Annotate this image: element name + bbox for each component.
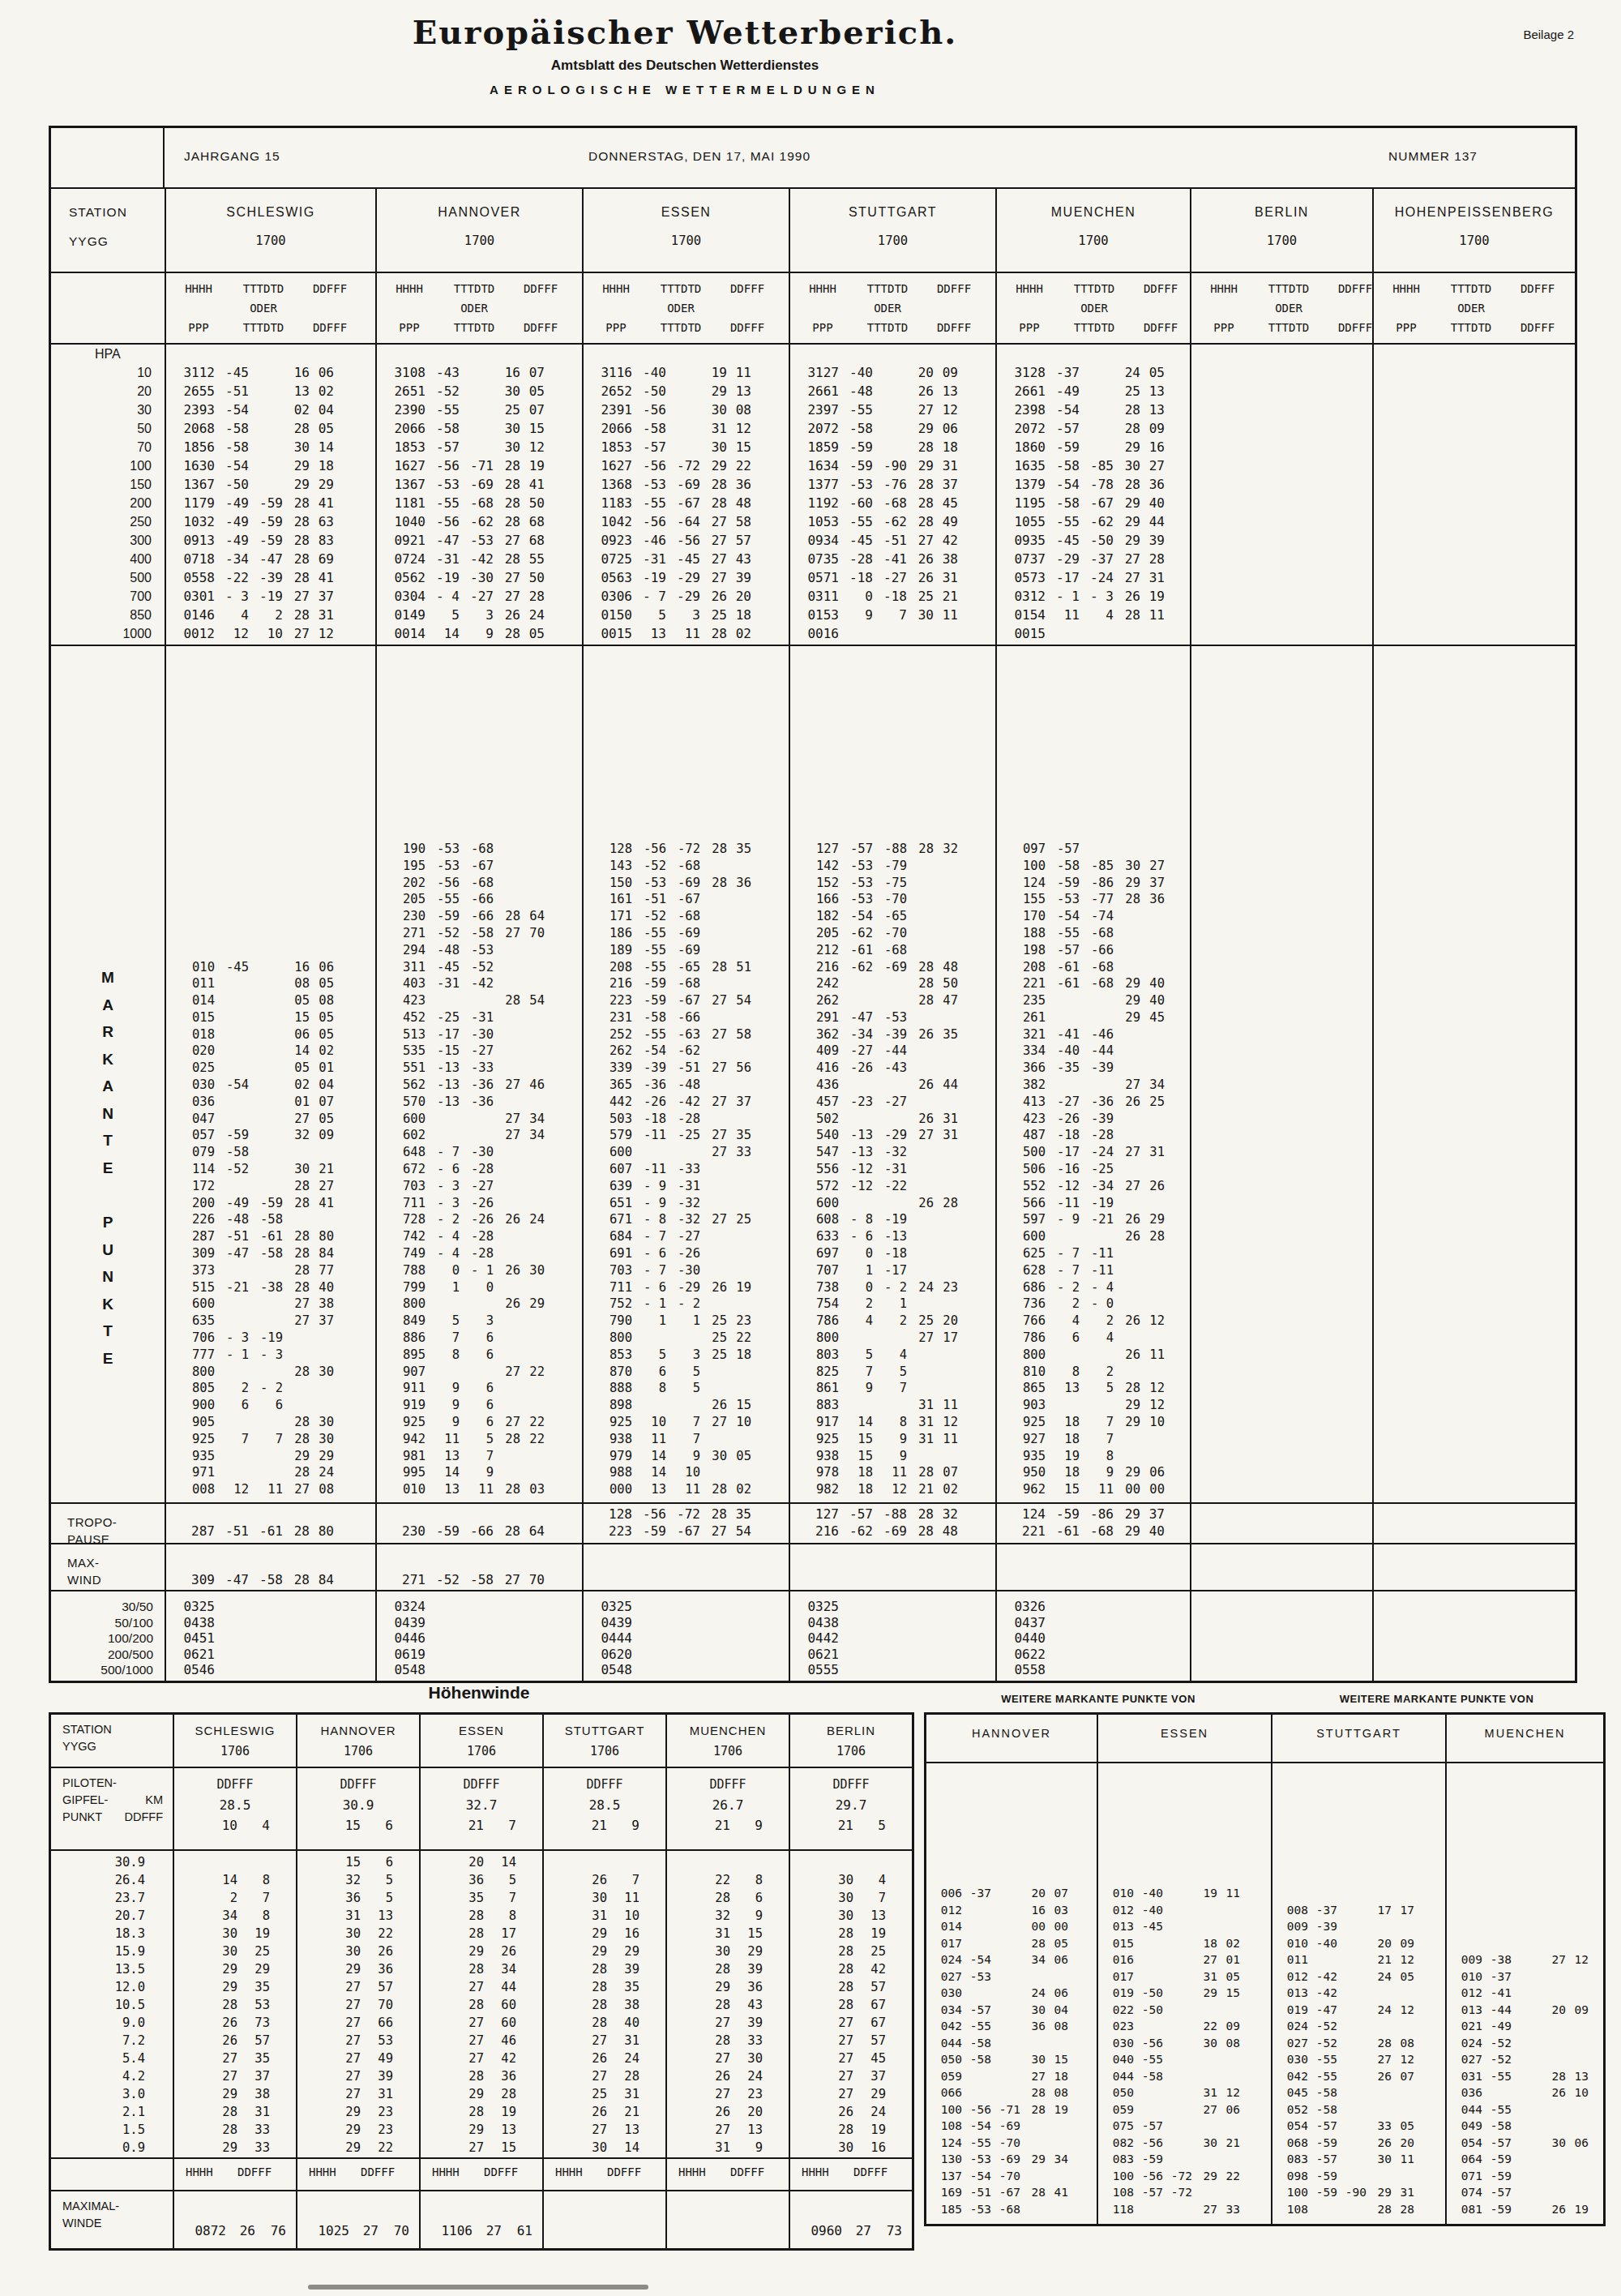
- value: [249, 1144, 283, 1161]
- value: [1020, 2135, 1046, 2152]
- value: -56: [632, 456, 666, 475]
- value: 47: [934, 992, 958, 1009]
- ddfff-label: DDFFF: [853, 2165, 887, 2178]
- value: 46: [520, 1077, 545, 1094]
- station-time: 1706: [667, 1744, 789, 1758]
- value: 11: [1140, 606, 1165, 624]
- value: 40: [1140, 494, 1165, 512]
- value: 26: [1114, 1211, 1140, 1228]
- value: 13: [934, 382, 958, 401]
- maxwind-row: 309-47-582884: [177, 1571, 375, 1588]
- value: [249, 1448, 283, 1465]
- value: 05: [520, 382, 545, 401]
- value: 436: [802, 1077, 839, 1094]
- value: [1140, 1161, 1165, 1178]
- markante-row: 82575: [802, 1364, 995, 1381]
- value: [1114, 1245, 1140, 1262]
- value: -52: [632, 908, 666, 925]
- value: 05: [1217, 1968, 1240, 1985]
- ratio-row: 0622: [1008, 1647, 1190, 1663]
- hw-hhhh-berlin: HHHHDDFFF: [789, 2159, 912, 2190]
- value: 28: [907, 1506, 934, 1523]
- value: -57: [632, 438, 666, 456]
- hpa-row: 1040-56-622868: [388, 512, 582, 531]
- value: -11: [632, 1127, 666, 1144]
- value: 15: [283, 1009, 310, 1026]
- value: [249, 1161, 283, 1178]
- value: -57: [1046, 419, 1080, 438]
- value: 13: [632, 1481, 666, 1498]
- value: 925: [388, 1414, 426, 1431]
- value: -43: [873, 1060, 907, 1077]
- value: 0154: [1008, 606, 1046, 624]
- weitere-row: 027-52: [1453, 2051, 1603, 2068]
- value: 15: [1046, 1481, 1080, 1498]
- markante-row: 114-523021: [177, 1161, 375, 1178]
- value: 883: [802, 1397, 839, 1414]
- value: [1217, 2184, 1240, 2201]
- value: 29: [327, 1960, 361, 1978]
- value: 13: [730, 2121, 763, 2139]
- value: 27: [1541, 1951, 1566, 1968]
- value: - 6: [632, 1279, 666, 1296]
- colheader-text: TTTDTD: [642, 318, 720, 337]
- value: - 7: [632, 1228, 666, 1245]
- value: 29: [907, 419, 934, 438]
- ratio-row: [1385, 1662, 1575, 1678]
- weitere-row: 034-573004: [933, 2002, 1097, 2019]
- value: 27: [494, 1414, 520, 1431]
- hpa-col-essen: 3116-4019112652-5029132391-5630082066-58…: [582, 345, 789, 645]
- wind-row: 2819: [421, 2103, 542, 2121]
- value: 579: [595, 1127, 632, 1144]
- wt-body: 006-372007012160301400000172805024-54340…: [926, 1762, 1603, 2224]
- ddfff-label: DDFFF: [790, 1775, 912, 1795]
- value: 14: [484, 1853, 516, 1871]
- wind-row: 3022: [297, 1925, 419, 1943]
- value: 30: [573, 1889, 607, 1907]
- value: -31: [666, 1178, 700, 1195]
- piloten-label-row: GIPFEL-KM: [62, 1792, 173, 1809]
- value: [1217, 2068, 1240, 2085]
- value: [1163, 1902, 1192, 1919]
- colheader-grid: HHHHTTTDTDDDFFFODERPPPTTTDTDDDFFF: [1374, 273, 1575, 337]
- ratio-row: 0325: [802, 1599, 995, 1615]
- value: 28: [203, 2121, 237, 2139]
- value: 27: [696, 2050, 730, 2067]
- wind-row: 2739: [297, 2067, 419, 2085]
- value: 05: [283, 1060, 310, 1077]
- colheader-hohenpeissenberg: HHHHTTTDTDDDFFFODERPPPTTTDTDDDFFF: [1372, 273, 1575, 343]
- value: 0326: [1008, 1599, 1046, 1615]
- markante-row: 78664: [1008, 1330, 1190, 1347]
- value: 31: [907, 1414, 934, 1431]
- value: -42: [460, 975, 494, 992]
- value: [1203, 1647, 1240, 1663]
- value: 027: [1279, 2035, 1308, 2052]
- value: 16: [283, 959, 310, 976]
- value: -45: [215, 959, 249, 976]
- colheader-muenchen: HHHHTTTDTDDDFFFODERPPPTTTDTDDDFFF: [995, 273, 1190, 343]
- value: 566: [1008, 1195, 1046, 1212]
- value: 7: [666, 1414, 700, 1431]
- value: -68: [460, 875, 494, 892]
- gipfel-km: 29.7: [790, 1795, 912, 1815]
- markante-row: 311-45-52: [388, 959, 582, 976]
- value: [1192, 1902, 1217, 1919]
- value: 57: [853, 2032, 886, 2050]
- hpa-row: 2066-583015: [388, 419, 582, 438]
- value: 31: [607, 2032, 639, 2050]
- value: [700, 908, 727, 925]
- value: -56: [1134, 2035, 1163, 2052]
- value: 9: [730, 1815, 763, 1836]
- value: 28: [1114, 475, 1140, 494]
- value: 27: [700, 531, 727, 550]
- hpa-row: 1853-573015: [595, 438, 789, 456]
- value: [1541, 2151, 1566, 2168]
- value: -53: [962, 1968, 991, 1985]
- markante-row: 252-55-632758: [595, 1026, 789, 1043]
- markante-row: 291-47-53: [802, 1009, 995, 1026]
- markante-row: 8002629: [388, 1296, 582, 1313]
- value: [907, 1448, 934, 1465]
- value: [873, 1397, 907, 1414]
- value: 28: [1541, 2068, 1566, 2085]
- value: 19: [484, 2103, 516, 2121]
- value: [1192, 2068, 1217, 2085]
- value: 20: [450, 1853, 484, 1871]
- value: [934, 1448, 958, 1465]
- value: -67: [666, 1523, 700, 1540]
- value: [249, 456, 283, 475]
- markante-row: 8002830: [177, 1364, 375, 1381]
- value: - 3: [1080, 587, 1114, 606]
- value: 0573: [1008, 568, 1046, 587]
- value: -33: [460, 1060, 494, 1077]
- markante-row: 556-12-31: [802, 1161, 995, 1178]
- value: 21: [1217, 2135, 1240, 2152]
- value: -58: [249, 1571, 283, 1588]
- value: -44: [1482, 2002, 1512, 2019]
- value: [1512, 2184, 1541, 2201]
- value: 1367: [388, 475, 426, 494]
- value: -69: [666, 925, 700, 942]
- value: 28: [494, 456, 520, 475]
- value: -57: [1046, 841, 1080, 858]
- hpa-row: 1195-58-672940: [1008, 494, 1190, 512]
- value: 010: [177, 959, 215, 976]
- value: 16: [1140, 438, 1165, 456]
- value: 28: [907, 841, 934, 858]
- value: [494, 975, 520, 992]
- wind-row: 3026: [297, 1943, 419, 1960]
- value: -48: [215, 1211, 249, 1228]
- value: 044: [933, 2035, 962, 2052]
- value: 26: [1114, 587, 1140, 606]
- markante-row: 100-58-853027: [1008, 858, 1190, 875]
- value: [1392, 2018, 1414, 2035]
- value: -56: [1134, 2135, 1163, 2152]
- markante-row: 0360107: [177, 1094, 375, 1111]
- value: 205: [802, 925, 839, 942]
- value: 27: [450, 2050, 484, 2067]
- value: 30: [819, 1871, 853, 1889]
- value: 55: [520, 550, 545, 568]
- value: [1114, 1448, 1140, 1465]
- value: 08: [1046, 2084, 1068, 2101]
- value: [907, 1009, 934, 1026]
- hpa-level: 850: [51, 606, 165, 624]
- value: 0: [839, 1279, 873, 1296]
- ratio-row: [1385, 1647, 1575, 1663]
- value: 29: [730, 1943, 763, 1960]
- value: [1080, 1347, 1114, 1364]
- value: 013: [1453, 2002, 1482, 2019]
- value: 28: [283, 1195, 310, 1212]
- hpa-row: 01541142811: [1008, 606, 1190, 624]
- markante-row: 671- 8-322725: [595, 1211, 789, 1228]
- value: 15: [1217, 1985, 1240, 2002]
- value: [907, 891, 934, 908]
- value: 21: [1367, 1951, 1392, 1968]
- markante-row: 9501892906: [1008, 1464, 1190, 1481]
- value: 42: [484, 2050, 516, 2067]
- value: -69: [460, 475, 494, 494]
- value: 35: [607, 1978, 639, 1996]
- value: 04: [310, 1077, 334, 1094]
- wind-row: 3016: [790, 2139, 912, 2157]
- weitere-row: 010-402009: [1279, 1935, 1445, 1952]
- value: 0: [839, 587, 873, 606]
- value: -27: [666, 1228, 700, 1245]
- markante-row: 752- 1- 2: [595, 1296, 789, 1313]
- value: [839, 1111, 873, 1128]
- value: [1020, 2168, 1046, 2185]
- wind-row: 288: [421, 1907, 542, 1925]
- value: [494, 1195, 520, 1212]
- punkte-letter: K: [102, 1291, 113, 1318]
- value: 506: [1008, 1161, 1046, 1178]
- markante-row: 212-61-68: [802, 942, 995, 959]
- value: 0621: [177, 1647, 215, 1663]
- value: 21: [310, 1161, 334, 1178]
- markante-row: 84953: [388, 1313, 582, 1330]
- value: - 7: [632, 1262, 666, 1279]
- colheader-text: TTTDTD: [435, 318, 513, 337]
- value: - 2: [426, 1211, 460, 1228]
- hpa-level: 150: [51, 475, 165, 494]
- value: 30: [520, 1262, 545, 1279]
- value: [1566, 2035, 1589, 2052]
- value: 31: [696, 1925, 730, 1943]
- tropopause-row: 287-51-612880: [177, 1523, 375, 1540]
- value: [494, 1228, 520, 1245]
- value: [934, 1060, 958, 1077]
- markante-row: 8651352812: [1008, 1380, 1190, 1397]
- value: 291: [802, 1009, 839, 1026]
- hhhh-label: HHHH: [555, 2165, 607, 2178]
- colheader-text: TTTDTD: [1055, 318, 1133, 337]
- value: 07: [310, 1094, 334, 1111]
- value: 32: [934, 1506, 958, 1523]
- value: 80: [310, 1523, 334, 1540]
- value: 0735: [802, 550, 839, 568]
- value: -77: [1080, 891, 1114, 908]
- value: - 9: [1046, 1211, 1080, 1228]
- value: -32: [666, 1195, 700, 1212]
- value: -52: [632, 858, 666, 875]
- value: 28: [283, 494, 310, 512]
- value: [873, 1195, 907, 1212]
- value: -12: [1046, 1178, 1080, 1195]
- hw-piloten-label-cell: PILOTEN-GIPFEL-KMPUNKTDDFFF: [51, 1768, 173, 1849]
- value: 27: [1192, 2201, 1217, 2218]
- value: 28: [907, 512, 934, 531]
- value: [1163, 2051, 1192, 2068]
- value: 7: [426, 1330, 460, 1347]
- value: [1114, 1043, 1140, 1060]
- value: [700, 891, 727, 908]
- value: 013: [1279, 1985, 1308, 2002]
- value: 9: [460, 1464, 494, 1481]
- markante-row: 9052830: [177, 1414, 375, 1431]
- value: [907, 908, 934, 925]
- value: 0149: [388, 606, 426, 624]
- value: 45: [1140, 1009, 1165, 1026]
- wind-row: 2757: [790, 2032, 912, 2050]
- value: 600: [388, 1111, 426, 1128]
- value: 21: [934, 587, 958, 606]
- value: 008: [1279, 1902, 1308, 1919]
- hpa-row: 2391-563008: [595, 401, 789, 419]
- markante-row: 540-13-292731: [802, 1127, 995, 1144]
- value: 0558: [177, 568, 215, 587]
- value: 042: [933, 2018, 962, 2035]
- value: 14: [203, 1871, 237, 1889]
- value: 27: [907, 1330, 934, 1347]
- weitere-station-muenchen: MUENCHEN: [1445, 1715, 1603, 1762]
- value: -62: [839, 959, 873, 976]
- value: 1859: [802, 438, 839, 456]
- value: -68: [460, 841, 494, 858]
- value: [494, 1009, 520, 1026]
- value: 35: [237, 2050, 270, 2067]
- value: 27: [1114, 1077, 1140, 1094]
- value: [727, 1161, 751, 1178]
- markante-row: 79910: [388, 1279, 582, 1296]
- markante-row: 672- 6-28: [388, 1161, 582, 1178]
- value: [1140, 942, 1165, 959]
- hpa-row: 03110-182521: [802, 587, 995, 606]
- markante-row: 9032912: [1008, 1397, 1190, 1414]
- value: 212: [802, 942, 839, 959]
- tropopause-row: 124-59-862937: [1008, 1506, 1190, 1523]
- ratio-row: 0620: [595, 1647, 789, 1663]
- station-time: 1706: [297, 1744, 419, 1758]
- colheader-text: DDFFF: [1510, 279, 1565, 298]
- value: 35: [237, 1978, 270, 1996]
- value: -57: [962, 2002, 991, 2019]
- value: 0960: [800, 2222, 842, 2240]
- value: [249, 1262, 283, 1279]
- value: -37: [1046, 363, 1080, 382]
- value: [1512, 1951, 1541, 1968]
- km-level: 3.0: [51, 2085, 173, 2103]
- value: [1385, 1615, 1422, 1631]
- value: -31: [873, 1161, 907, 1178]
- value: 29: [203, 1960, 237, 1978]
- value: 886: [388, 1330, 426, 1347]
- markante-row: 81082: [1008, 1364, 1190, 1381]
- value: 27: [327, 2032, 361, 2050]
- value: 00: [1046, 1918, 1068, 1935]
- hpa-row: 3128-372405: [1008, 363, 1190, 382]
- value: [215, 1094, 249, 1111]
- markante-row: 608- 8-19: [802, 1211, 995, 1228]
- value: -58: [839, 419, 873, 438]
- value: 097: [1008, 841, 1046, 858]
- ratio-row: 0558: [1008, 1662, 1190, 1678]
- value: 800: [802, 1330, 839, 1347]
- value: [1308, 2201, 1337, 2218]
- value: 068: [1279, 2135, 1308, 2152]
- value: [1140, 1111, 1165, 1128]
- value: [1203, 1615, 1240, 1631]
- value: -88: [873, 841, 907, 858]
- value: 0442: [802, 1630, 839, 1647]
- hpa-row: 2397-552712: [802, 401, 995, 419]
- value: [1020, 1968, 1046, 1985]
- value: 409: [802, 1043, 839, 1060]
- value: 60: [484, 2014, 516, 2032]
- value: -58: [426, 419, 460, 438]
- value: 1055: [1008, 512, 1046, 531]
- value: 06: [1217, 2101, 1240, 2118]
- value: 56: [727, 1060, 751, 1077]
- hhhh-ddfff-labels: HHHHDDFFF: [309, 2165, 419, 2178]
- value: - 6: [632, 1245, 666, 1262]
- value: 00: [1114, 1481, 1140, 1498]
- value: 938: [802, 1448, 839, 1465]
- value: 118: [1105, 2201, 1134, 2218]
- value: 047: [177, 1111, 215, 1128]
- markante-letter: A: [102, 1073, 113, 1100]
- value: 28: [450, 1960, 484, 1978]
- value: 26: [494, 1262, 520, 1279]
- ddfff-label: DDFFF: [237, 2165, 272, 2178]
- value: 707: [802, 1262, 839, 1279]
- value: -72: [666, 1506, 700, 1523]
- value: 37: [237, 2067, 270, 2085]
- value: 0935: [1008, 531, 1046, 550]
- value: 100: [1279, 2184, 1308, 2201]
- markante-letter: M: [101, 964, 114, 992]
- hhhh-ddfff-labels: HHHHDDFFF: [186, 2165, 296, 2178]
- value: 31: [237, 2103, 270, 2121]
- value: -31: [632, 550, 666, 568]
- value: 911: [388, 1380, 426, 1397]
- value: 5: [484, 1871, 516, 1889]
- beilage-label: Beilage 2: [1523, 28, 1574, 41]
- value: 29: [853, 2085, 886, 2103]
- markante-row: 691- 6-26: [595, 1245, 789, 1262]
- value: 30: [283, 438, 310, 456]
- markante-row: 321-41-46: [1008, 1026, 1190, 1043]
- tropopause-row: 223-59-672754: [595, 1523, 789, 1540]
- value: 8: [237, 1871, 270, 1889]
- markante-row: 628- 7-11: [1008, 1262, 1190, 1279]
